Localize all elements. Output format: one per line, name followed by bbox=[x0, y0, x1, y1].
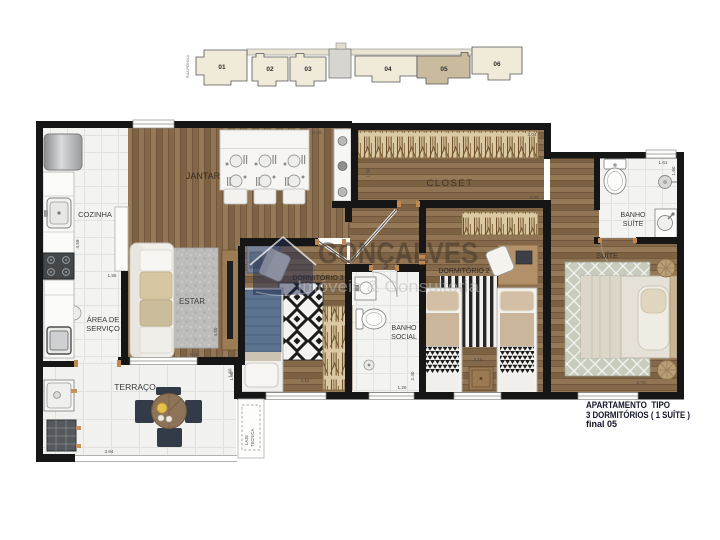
svg-text:1.60: 1.60 bbox=[671, 166, 676, 175]
svg-text:06: 06 bbox=[493, 61, 501, 68]
svg-text:ÁREA DE: ÁREA DE bbox=[87, 315, 120, 324]
svg-text:03: 03 bbox=[304, 66, 312, 73]
svg-text:4.43: 4.43 bbox=[530, 195, 539, 200]
svg-text:1.55: 1.55 bbox=[108, 273, 117, 278]
svg-text:BANHO: BANHO bbox=[621, 212, 646, 219]
svg-text:SOCIAL: SOCIAL bbox=[391, 334, 417, 341]
svg-text:TECNICA: TECNICA bbox=[250, 428, 255, 447]
svg-text:2.15: 2.15 bbox=[474, 357, 483, 362]
svg-text:TERRAÇO: TERRAÇO bbox=[114, 382, 156, 392]
svg-text:1.61: 1.61 bbox=[659, 160, 668, 165]
svg-text:01: 01 bbox=[218, 64, 226, 71]
svg-text:1.50: 1.50 bbox=[366, 168, 371, 177]
svg-text:04: 04 bbox=[384, 66, 392, 73]
svg-text:COZINHA: COZINHA bbox=[78, 210, 112, 219]
svg-text:2.70: 2.70 bbox=[637, 380, 646, 385]
svg-text:1.20: 1.20 bbox=[398, 385, 407, 390]
svg-text:05: 05 bbox=[440, 66, 448, 73]
svg-text:SUÍTE: SUÍTE bbox=[596, 251, 618, 260]
svg-text:1.80: 1.80 bbox=[229, 371, 234, 380]
svg-text:SERVIÇO: SERVIÇO bbox=[86, 324, 120, 333]
svg-text:Imóveis & Consultoria: Imóveis & Consultoria bbox=[297, 277, 480, 296]
svg-text:LAJE: LAJE bbox=[244, 435, 249, 445]
svg-text:4.59: 4.59 bbox=[75, 239, 80, 248]
svg-text:02: 02 bbox=[266, 66, 274, 73]
svg-text:RUA PEROLA: RUA PEROLA bbox=[186, 54, 190, 78]
svg-text:2.40: 2.40 bbox=[410, 371, 415, 380]
svg-text:final 05: final 05 bbox=[586, 419, 617, 429]
svg-text:2.25: 2.25 bbox=[190, 352, 199, 357]
svg-text:APARTAMENTO TIPO: APARTAMENTO TIPO bbox=[586, 400, 670, 410]
svg-text:3.04: 3.04 bbox=[528, 132, 537, 137]
svg-text:CLOSET: CLOSET bbox=[426, 178, 473, 189]
svg-text:ESTAR: ESTAR bbox=[179, 297, 205, 306]
svg-text:3.84: 3.84 bbox=[105, 449, 114, 454]
svg-text:BANHO: BANHO bbox=[392, 325, 417, 332]
svg-text:JANTAR: JANTAR bbox=[186, 171, 221, 181]
svg-text:SUÍTE: SUÍTE bbox=[623, 219, 644, 228]
svg-text:4.50: 4.50 bbox=[213, 327, 218, 336]
svg-text:4.40: 4.40 bbox=[313, 130, 322, 135]
svg-text:2.11: 2.11 bbox=[301, 378, 310, 383]
